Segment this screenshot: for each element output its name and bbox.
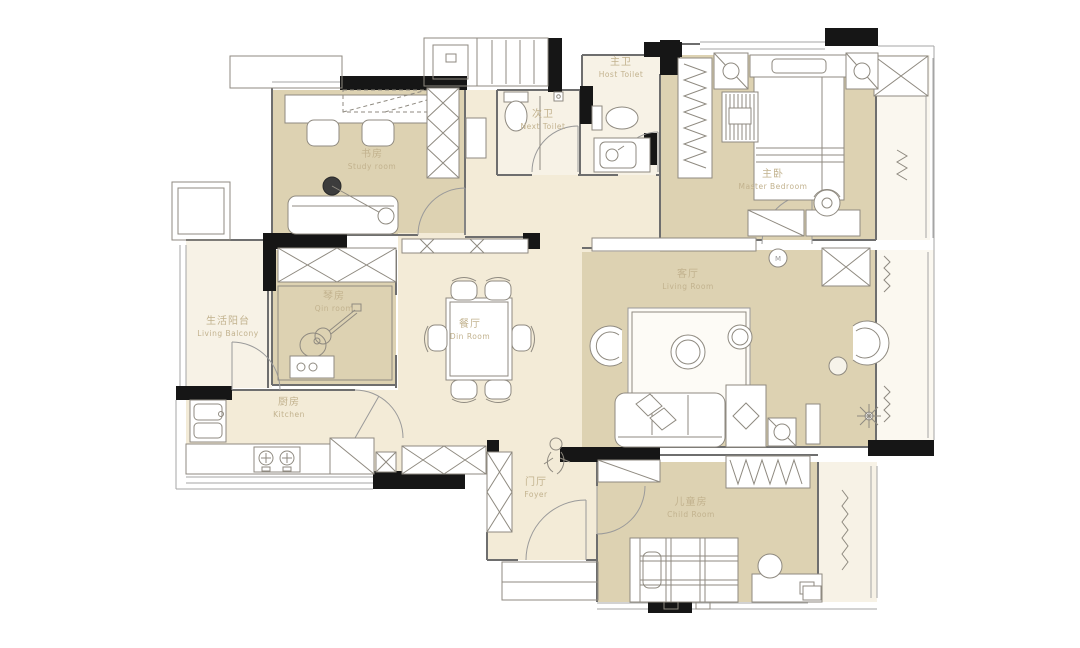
living-balcony-floor <box>186 240 272 388</box>
balcony-stool <box>803 586 821 600</box>
table-lamp <box>723 63 739 79</box>
stair-shaft <box>477 38 548 86</box>
dining-table <box>446 298 512 380</box>
kitchen-window <box>186 477 373 483</box>
gas-stove <box>254 447 300 472</box>
floor-drain <box>554 92 563 101</box>
study-desk <box>285 95 437 123</box>
child-bed <box>630 538 738 609</box>
plant <box>829 357 847 375</box>
desk-stool <box>758 554 782 578</box>
low-table <box>290 356 334 378</box>
study-wardrobe <box>427 88 459 178</box>
desk-chair <box>307 120 339 146</box>
child-cabinet <box>598 460 660 482</box>
side-cabinet <box>822 248 870 286</box>
desk-chair <box>362 120 394 146</box>
kitchen-sink <box>190 400 226 442</box>
qin-cabinets <box>278 248 396 282</box>
sideboard <box>402 239 528 253</box>
toilet-bowl <box>505 101 527 131</box>
master-bedroom-window <box>700 42 825 49</box>
child-room-window <box>597 603 808 609</box>
floor-lamp <box>378 208 394 224</box>
bedroom-chair <box>814 189 840 216</box>
master-wardrobe <box>678 58 712 178</box>
equipment-platform-right <box>874 56 928 96</box>
table-lamp <box>854 63 870 79</box>
small-cabinet <box>376 452 396 472</box>
tall-cabinet <box>806 404 820 444</box>
counter-cabinet <box>330 438 374 474</box>
floor-plan: M <box>0 0 1080 648</box>
hall-cabinet <box>466 118 486 158</box>
plant-fan <box>857 404 881 428</box>
nightstand-right <box>846 53 878 89</box>
corner-table <box>768 418 796 446</box>
study-window <box>272 82 340 88</box>
exhaust-fan: M <box>769 249 787 267</box>
sofa <box>615 393 725 447</box>
entry-steps <box>502 562 598 600</box>
ac-platform-top <box>230 56 342 88</box>
vanity-sink <box>594 138 650 172</box>
child-wardrobe <box>726 456 810 488</box>
shoe-cabinet-low <box>402 446 486 474</box>
sofa-side-table <box>726 385 766 447</box>
shoe-cabinet-tall <box>487 452 512 532</box>
piano-cabinet <box>722 92 758 142</box>
floor-plan-drawing: M <box>0 0 1080 648</box>
ac-platform-left <box>172 182 230 240</box>
toilet-tank <box>592 106 602 130</box>
nightstand-left <box>714 53 748 89</box>
media-cabinet <box>592 238 756 251</box>
toilet-bowl <box>606 107 638 129</box>
master-bed <box>750 55 848 200</box>
balcony-window <box>180 245 186 386</box>
child-balcony-floor <box>818 462 877 602</box>
ac-fan-label: M <box>775 255 781 263</box>
